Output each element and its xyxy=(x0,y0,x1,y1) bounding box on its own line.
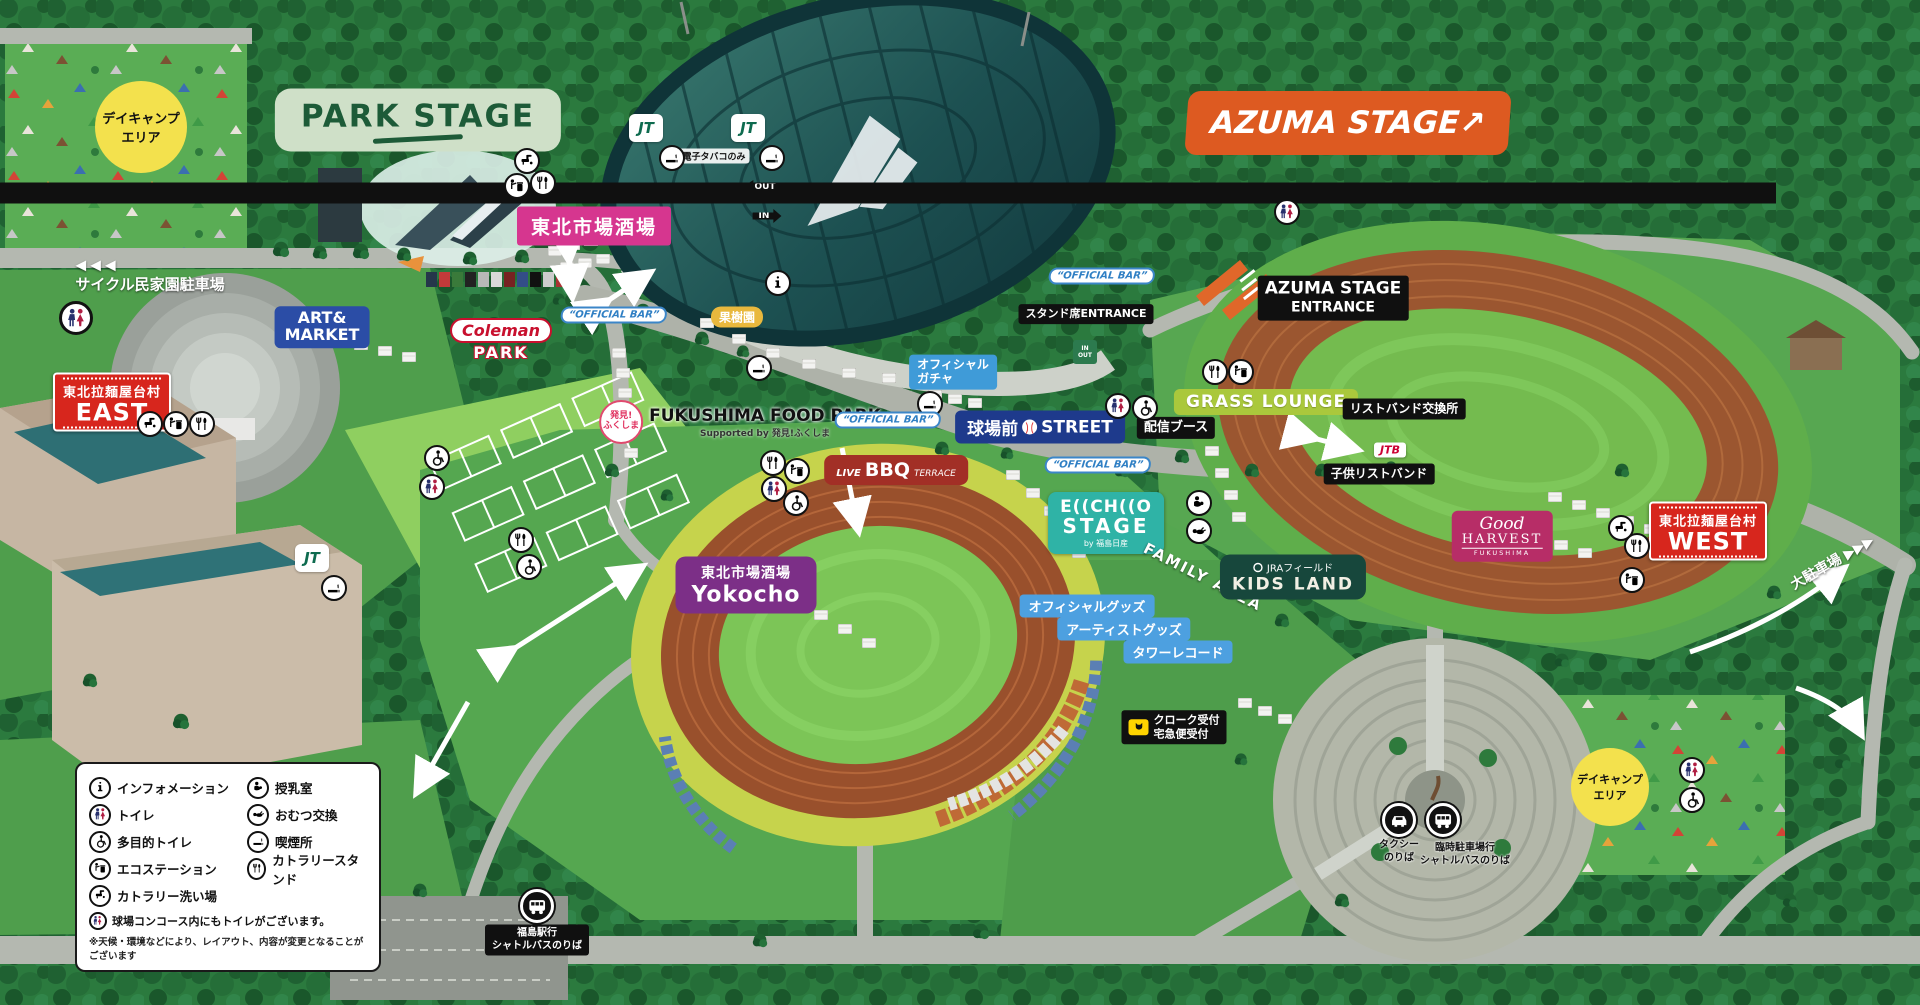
jt-sign: JT xyxy=(295,544,329,572)
day-camp-area-right: デイキャンプエリア xyxy=(1571,748,1649,826)
cutlery-wash-icon xyxy=(89,885,111,907)
toilet-icon xyxy=(89,804,111,826)
smoking-area-icon xyxy=(247,831,269,853)
accessible-toilet-icon xyxy=(1679,787,1705,813)
shuttle-bus-icon xyxy=(1426,803,1460,837)
cutlery-wash-icon xyxy=(137,411,163,437)
cutlery-wash-icon xyxy=(514,148,540,174)
official-bar-sign: “OFFICIAL BAR” xyxy=(1048,268,1156,285)
legend-item: エコステーション xyxy=(89,855,247,882)
kids-land-sign: JRAフィールド KIDS LAND xyxy=(1220,555,1366,600)
cutlery-stand-icon xyxy=(760,450,786,476)
legend-item: カトラリースタンド xyxy=(247,855,367,882)
stand-gate-booth: INOUT xyxy=(1073,340,1097,364)
toilet-icon xyxy=(1274,199,1300,225)
official-bar-sign: “OFFICIAL BAR” xyxy=(560,307,668,324)
circular-plaza xyxy=(1273,638,1597,962)
azuma-entrance-sign: AZUMA STAGE ENTRANCE xyxy=(1258,276,1409,321)
smoking-area-icon xyxy=(746,355,772,381)
poster-strip xyxy=(426,272,567,287)
jt-sign: JT xyxy=(731,114,765,142)
festival-map: PARK STAGE AZUMA STAGE↗ E((CH((O STAGE b… xyxy=(0,0,1920,1005)
art-market-sign: ART&MARKET xyxy=(275,306,370,348)
eco-station-icon xyxy=(504,173,530,199)
eco-station-icon xyxy=(784,458,810,484)
toilet-icon xyxy=(59,301,93,335)
open-time-label: 12:00~ xyxy=(0,183,1776,204)
smoking-area-icon xyxy=(321,575,347,601)
cutlery-stand-icon xyxy=(508,527,534,553)
map-legend: インフォメーション トイレ 多目的トイレ エコステーション カトラリー洗い場 授… xyxy=(75,762,381,972)
accessible-toilet-icon xyxy=(89,831,111,853)
yokocho-sign: 東北市場酒場Yokocho xyxy=(676,557,817,614)
good-harvest-sign: GoodHARVESTFUKUSHIMA xyxy=(1452,511,1553,562)
ecig-only-label: 電子タバコのみ xyxy=(678,149,749,164)
legend-item: 多目的トイレ xyxy=(89,828,247,855)
fukushima-shuttle-sign: 福島駅行シャトルバスのりば xyxy=(485,925,589,956)
tower-records-sign: タワーレコード xyxy=(1123,641,1232,664)
diaper-change-icon xyxy=(1186,518,1212,544)
legend-item: 授乳室 xyxy=(247,774,367,801)
toilet-icon xyxy=(419,474,445,500)
orchard-sign: 果樹園 xyxy=(711,307,763,328)
street-sign: 球場前STREET xyxy=(955,411,1125,444)
arrow-icon: ↗ xyxy=(1458,105,1487,141)
cloak-sign: クローク受付宅急便受付 xyxy=(1122,710,1227,744)
legend-toilet-note: 球場コンコース内にもトイレがございます。 xyxy=(89,912,367,930)
jra-logo-icon xyxy=(1253,562,1263,572)
accessible-toilet-icon xyxy=(1132,395,1158,421)
toilet-icon xyxy=(89,912,107,930)
west-village-sign: 東北拉麺屋台村WEST xyxy=(1649,502,1767,561)
cutlery-stand-icon xyxy=(247,858,266,880)
nursing-room-icon xyxy=(1186,490,1212,516)
legend-item: カトラリー洗い場 xyxy=(89,882,247,909)
eco-station-icon xyxy=(1619,567,1645,593)
wristband-exchange-sign: リストバンド交換所 xyxy=(1343,399,1466,420)
eco-station-icon xyxy=(1228,359,1254,385)
baseball-icon xyxy=(1022,420,1037,435)
smoking-area-icon xyxy=(759,145,785,171)
bbq-terrace-sign: LIVEBBQTERRACE xyxy=(824,455,968,485)
legend-item: おむつ交換 xyxy=(247,801,367,828)
nursing-room-icon xyxy=(247,777,269,799)
cat-courier-icon xyxy=(1129,719,1149,735)
cutlery-stand-icon xyxy=(1624,533,1650,559)
cutlery-stand-icon xyxy=(189,411,215,437)
accessible-toilet-icon xyxy=(424,445,450,471)
accessible-toilet-icon xyxy=(516,554,542,580)
legend-disclaimer: ※天候・環境などにより、レイアウト、内容が変更となることがございます xyxy=(89,934,367,962)
arrows-left-icon: ◀◀◀ xyxy=(75,258,224,274)
market-sakaba-sign: 東北市場酒場 xyxy=(517,207,671,246)
eco-station-icon xyxy=(89,858,111,880)
legend-item: インフォメーション xyxy=(89,774,247,801)
jtb-logo: JTB xyxy=(1374,443,1406,458)
jt-sign: JT xyxy=(629,114,663,142)
cutlery-stand-icon xyxy=(1202,359,1228,385)
smoking-area-icon xyxy=(659,145,685,171)
azuma-stage-sign: AZUMA STAGE↗ xyxy=(1184,91,1511,155)
artist-goods-sign: アーティストグッズ xyxy=(1057,618,1190,641)
park-stage-sign: PARK STAGE xyxy=(275,89,561,152)
cutlery-stand-icon xyxy=(530,170,556,196)
info-icon xyxy=(765,270,791,296)
legend-item: トイレ xyxy=(89,801,247,828)
toilet-icon xyxy=(1105,393,1131,419)
official-bar-sign: “OFFICIAL BAR” xyxy=(1044,457,1152,474)
stand-entrance-sign: スタンド席ENTRANCE xyxy=(1019,304,1154,324)
toilet-icon xyxy=(1679,757,1705,783)
hakken-fukushima-badge: 発見!ふくしま xyxy=(599,400,643,444)
taxi-stand-label: タクシーのりば xyxy=(1379,840,1419,865)
eco-station-icon xyxy=(163,411,189,437)
info-icon xyxy=(89,777,111,799)
taxi-icon xyxy=(1382,803,1416,837)
day-camp-area-left: デイキャンプエリア xyxy=(95,81,187,173)
accessible-toilet-icon xyxy=(783,490,809,516)
shuttle-bus-icon xyxy=(520,889,554,923)
diaper-change-icon xyxy=(247,804,269,826)
grass-lounge-sign: GRASS LOUNGE xyxy=(1174,389,1358,415)
official-bar-sign: “OFFICIAL BAR” xyxy=(834,412,942,429)
temp-parking-shuttle-label: 臨時駐車場行シャトルバスのりば xyxy=(1420,843,1510,868)
coleman-park-sign: ColemanPARK xyxy=(450,318,552,362)
cycle-parking-label: ◀◀◀ サイクル民家園駐車場 xyxy=(75,258,224,295)
kids-wristband-sign: 子供リストバンド xyxy=(1324,464,1435,485)
official-goods-sign: オフィシャルグッズ xyxy=(1020,595,1155,618)
official-gacha-sign: オフィシャルガチャ xyxy=(909,355,997,390)
